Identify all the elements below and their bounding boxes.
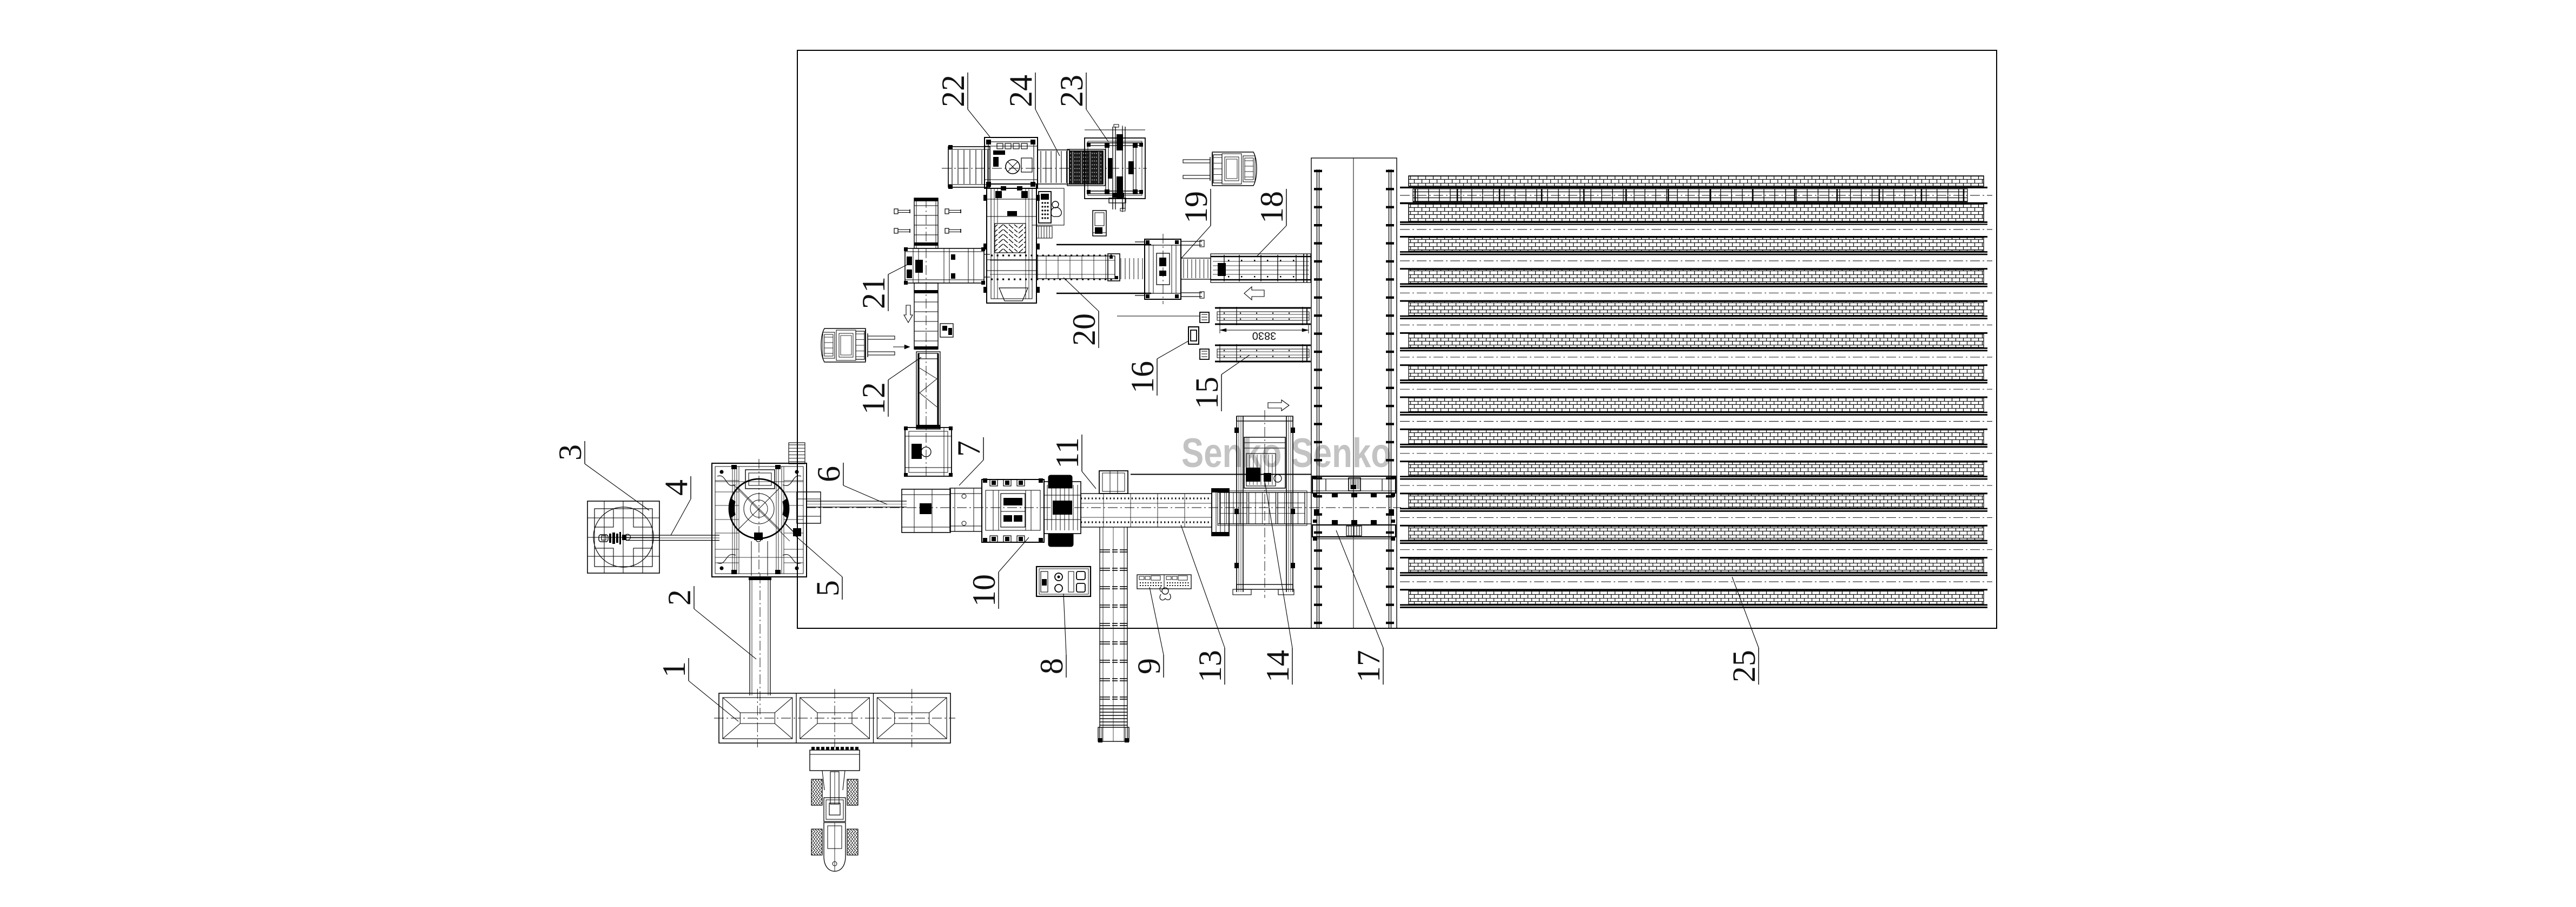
svg-text:2: 2 [662,589,697,606]
svg-text:13: 13 [1192,650,1228,682]
svg-text:20: 20 [1066,313,1102,346]
svg-text:1: 1 [656,661,692,678]
svg-text:9: 9 [1131,658,1167,674]
svg-text:5: 5 [810,580,846,596]
svg-text:10: 10 [966,574,1002,607]
svg-text:24: 24 [1003,75,1039,107]
svg-text:18: 18 [1254,191,1290,224]
svg-text:4: 4 [658,479,694,496]
svg-text:12: 12 [856,382,891,415]
svg-text:14: 14 [1260,650,1296,682]
svg-text:22: 22 [935,75,971,107]
svg-text:3830: 3830 [1252,330,1277,341]
svg-text:15: 15 [1189,377,1225,409]
svg-text:8: 8 [1034,658,1069,674]
svg-text:19: 19 [1178,191,1214,224]
svg-text:16: 16 [1125,361,1160,393]
svg-text:7: 7 [951,441,987,457]
svg-text:11: 11 [1049,437,1085,469]
svg-text:3: 3 [552,444,588,461]
svg-text:25: 25 [1726,650,1762,682]
svg-text:17: 17 [1351,650,1386,682]
svg-text:23: 23 [1054,75,1089,107]
svg-text:6: 6 [811,466,847,482]
svg-text:21: 21 [856,277,891,309]
